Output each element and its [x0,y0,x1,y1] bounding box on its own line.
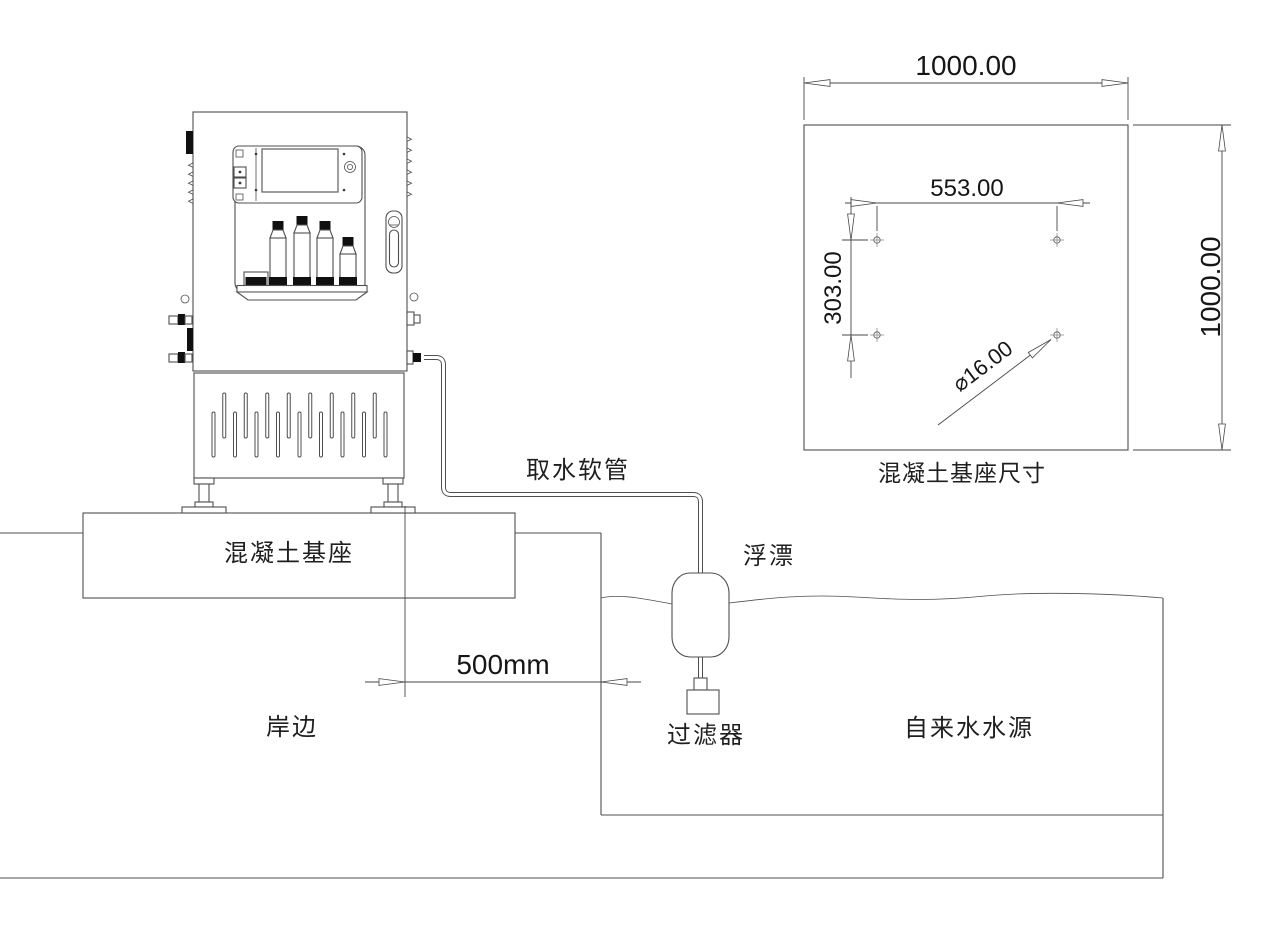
bottle-shelf [237,286,367,301]
clip-wedge-icon [407,192,412,196]
plan-view-caption: 混凝土基座尺寸 [878,461,1046,486]
vent-slot [234,412,237,457]
concrete-base-label: 混凝土基座 [224,540,354,567]
right-latch-circle [410,293,418,301]
vent-slot [244,393,247,438]
dimension-500mm-text: 500mm [456,649,549,680]
plan-width-text: 1000.00 [915,50,1016,81]
clip-wedge-icon [189,172,194,176]
intake-hose-label: 取水软管 [526,457,630,484]
water-source-label: 自来水水源 [904,715,1034,742]
vent-slot [255,412,258,457]
vent-slot [320,412,323,457]
analyzer-cabinet [169,112,421,513]
vent-slot [277,412,280,457]
arrowhead [804,80,830,87]
concrete-base-section: 混凝土基座 [83,513,515,598]
vent-slot [373,393,376,438]
clip-wedge-icon [189,199,194,203]
left-port-upper [169,314,192,325]
screw-dot [343,153,346,156]
float-body [672,573,729,657]
water-line-right [729,593,1163,603]
cabinet-foot-right [371,478,415,513]
clip-wedge-icon [407,137,412,141]
float-assembly: 浮漂 过滤器 [667,543,795,749]
base-plate [804,125,1128,450]
vent-slot [330,393,333,438]
shore-label: 岸边 [266,714,318,741]
left-rail-block [187,328,193,351]
right-port-upper [407,312,420,325]
filter-label: 过滤器 [667,722,745,749]
hinge-dot [239,171,242,174]
vent-slot [363,412,366,457]
left-edge-clips [189,163,194,203]
arrowhead [379,679,405,686]
clip-wedge-icon [407,181,412,185]
arrowhead [601,679,627,686]
right-port-hose-outlet [407,351,421,364]
clip-wedge-icon [407,148,412,152]
clip-wedge-icon [407,170,412,174]
arrowhead [1102,80,1128,87]
clip-wedge-icon [407,159,412,163]
float-label: 浮漂 [743,543,795,570]
base-plan-view: 1000.00 1000.00 553.00 303.00 [804,50,1231,486]
vent-slot [287,393,290,438]
left-port-lower [169,352,192,363]
screw-dot [255,153,258,156]
vent-slot [266,393,269,438]
vent-slot [223,393,226,438]
vent-slot [352,393,355,438]
clip-wedge-icon [189,163,194,167]
display-head [233,146,362,203]
arrowhead [1219,424,1226,450]
cabinet-foot-left [182,478,226,513]
reagent-tray [244,272,268,286]
hole-pitch-y-text: 303.00 [820,251,847,324]
screw-dot [255,189,258,192]
screw-dot [343,189,346,192]
dimension-plan-width: 1000.00 [804,50,1128,120]
left-latch-circle [181,295,189,303]
dimension-plan-height: 1000.00 [1133,125,1231,450]
left-hinge-block [186,131,193,154]
display-screen [262,149,338,192]
clip-wedge-icon [189,181,194,185]
clip-wedge-icon [189,190,194,194]
vent-slot [298,412,301,457]
plan-height-text: 1000.00 [1195,236,1226,337]
arrowhead [1219,125,1226,151]
water-line-left [601,596,672,604]
vent-slot [309,393,312,438]
hole-pitch-x-text: 553.00 [930,175,1003,202]
right-edge-clips [407,137,412,196]
vent-slot [341,412,344,457]
vent-slot [384,412,387,457]
installation-drawing: 混凝土基座 取水软管 浮漂 过滤器 岸边 自来水水源 [0,0,1271,939]
filter-body [687,690,719,714]
vent-slot [212,412,215,457]
hinge-dot [239,182,242,185]
filter-neck [694,678,707,690]
door-handle [386,211,402,273]
